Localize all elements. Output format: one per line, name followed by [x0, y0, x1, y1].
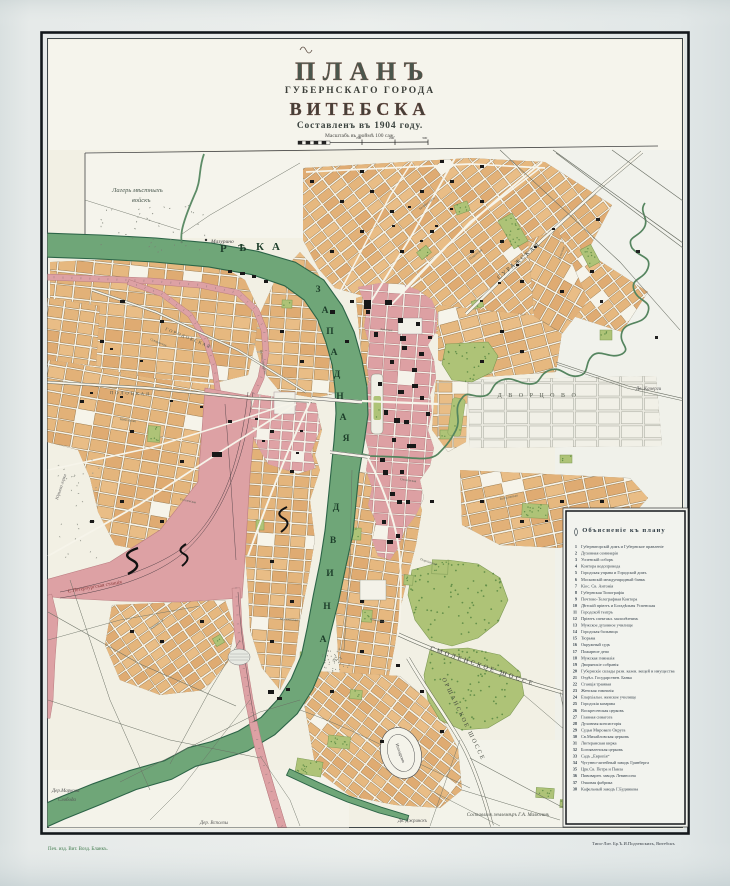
svg-text:Богоявленская церковь: Богоявленская церковь [581, 747, 623, 752]
svg-text:ГУБЕРНСКАГО ГОРОДА: ГУБЕРНСКАГО ГОРОДА [285, 86, 435, 96]
svg-text:Контора водопровода: Контора водопровода [581, 564, 620, 569]
svg-text:А: А [320, 635, 327, 645]
svg-text:1: 1 [575, 544, 577, 549]
svg-text:Д: Д [334, 370, 341, 380]
svg-text:Объясненіе къ плану: Объясненіе къ плану [582, 527, 666, 534]
svg-text:35: 35 [573, 767, 577, 772]
svg-text:Дв. Качерги: Дв. Качерги [635, 387, 662, 392]
svg-text:А: А [272, 241, 280, 253]
svg-text:32: 32 [573, 747, 577, 752]
svg-text:П: П [326, 327, 334, 337]
svg-text:Окружный судъ: Окружный судъ [581, 642, 611, 647]
svg-text:Дер.Маркова: Дер.Маркова [51, 789, 80, 794]
svg-text:31: 31 [573, 741, 577, 746]
svg-text:Станція трамвая: Станція трамвая [581, 682, 611, 687]
svg-text:Н: Н [336, 392, 344, 402]
svg-text:19: 19 [573, 662, 577, 667]
svg-text:Д: Д [333, 503, 340, 513]
svg-text:33: 33 [573, 754, 577, 759]
svg-text:З: З [315, 285, 320, 295]
svg-text:Главная синагога: Главная синагога [581, 714, 612, 719]
svg-text:23: 23 [573, 688, 577, 693]
svg-text:22: 22 [573, 682, 577, 687]
svg-text:А: А [322, 306, 329, 316]
svg-text:13: 13 [573, 623, 577, 628]
svg-text:15: 15 [573, 636, 577, 641]
svg-text:Чугунно-литейный заводъ Гринбе: Чугунно-литейный заводъ Гринберга [581, 760, 649, 765]
svg-text:12: 12 [573, 616, 577, 621]
svg-text:ВИТЕБСКА: ВИТЕБСКА [290, 99, 431, 119]
svg-text:Московскій международный банкъ: Московскій международный банкъ [581, 577, 646, 582]
svg-text:войскъ: войскъ [132, 197, 151, 204]
svg-text:Св.Михайловская церковь: Св.Михайловская церковь [581, 734, 629, 739]
svg-text:Женская гимназія: Женская гимназія [581, 688, 614, 693]
svg-text:К: К [256, 241, 264, 253]
svg-text:Воскресенская церковь: Воскресенская церковь [581, 708, 624, 713]
svg-text:38: 38 [573, 786, 577, 791]
svg-text:3: 3 [575, 557, 577, 562]
svg-text:Составленъ въ 1904 году.: Составленъ въ 1904 году. [297, 121, 423, 131]
svg-text:21: 21 [573, 675, 577, 680]
svg-text:Пивоварен. заводъ Левинсона: Пивоварен. заводъ Левинсона [581, 773, 636, 778]
svg-text:Кіос. Св. Антонія: Кіос. Св. Антонія [581, 583, 613, 588]
svg-text:Дер. Всползы: Дер. Всползы [199, 821, 229, 826]
svg-text:Губернскіе склады разн. казен.: Губернскіе склады разн. казен. вещей и и… [581, 669, 675, 674]
svg-text:Духовная консисторія: Духовная консисторія [581, 721, 621, 726]
svg-text:20: 20 [573, 669, 577, 674]
svg-text:Составлялъ землемѣръ Г.А. Малю: Составлялъ землемѣръ Г.А. Малюгинъ [467, 813, 550, 818]
svg-text:Отдѣл. Государствен. Банка: Отдѣл. Государствен. Банка [581, 675, 632, 680]
svg-text:Очковая фабрика: Очковая фабрика [581, 780, 613, 785]
svg-text:И: И [326, 569, 334, 579]
svg-text:Успенскій соборъ: Успенскій соборъ [581, 557, 614, 562]
svg-text:Лютеранская кирка: Лютеранская кирка [581, 741, 617, 746]
svg-text:Ѣ: Ѣ [238, 242, 247, 254]
svg-text:Городскія казармы: Городскія казармы [581, 701, 615, 706]
svg-text:Печ. изд. Вит. Возд. Бланкъ.: Печ. изд. Вит. Возд. Бланкъ. [48, 847, 108, 852]
svg-text:30: 30 [573, 734, 577, 739]
svg-text:25: 25 [573, 701, 577, 706]
svg-text:Тюрьма: Тюрьма [581, 636, 595, 641]
svg-text:Пріютъ спектакл. малолѣтнихъ: Пріютъ спектакл. малолѣтнихъ [581, 616, 639, 621]
svg-text:А: А [331, 348, 338, 358]
svg-text:Мужское духовное училище: Мужское духовное училище [581, 623, 633, 628]
svg-text:Кафельный заводъ Г.Будникова: Кафельный заводъ Г.Будникова [581, 786, 638, 791]
svg-text:200: 200 [389, 136, 395, 140]
svg-text:11: 11 [573, 610, 577, 615]
svg-text:Губернаторскій домъ и Губернск: Губернаторскій домъ и Губернское правлен… [581, 544, 664, 549]
svg-text:А: А [340, 413, 347, 423]
svg-text:Городская больница: Городская больница [581, 629, 618, 634]
svg-text:Лагерь мѣстныхъ: Лагерь мѣстныхъ [111, 187, 163, 194]
svg-text:Городской театръ: Городской театръ [581, 610, 614, 615]
svg-text:Городская управа и Городской д: Городская управа и Городской домъ [581, 570, 647, 575]
svg-text:Дѣтскій пріютъ и Богадѣльня Ус: Дѣтскій пріютъ и Богадѣльня Успенская [581, 603, 655, 608]
svg-text:Црк.Св. Петра и Павла: Црк.Св. Петра и Павла [581, 767, 623, 772]
svg-text:Епархіальн. женское училище: Епархіальн. женское училище [581, 695, 636, 700]
svg-text:9: 9 [575, 596, 577, 601]
svg-text:Дворянскіе собранія: Дворянскіе собранія [581, 662, 618, 667]
svg-text:Духовная семинарія: Духовная семинарія [581, 551, 618, 556]
svg-text:Мужская гимназія: Мужская гимназія [581, 655, 614, 660]
svg-text:Дв. Джринскъ: Дв. Джринскъ [397, 819, 428, 824]
svg-text:18: 18 [573, 655, 577, 660]
svg-text:Судьи Мироваго Округа: Судьи Мироваго Округа [581, 727, 626, 732]
svg-text:Н: Н [323, 602, 331, 612]
svg-text:Губернская Типографія: Губернская Типографія [581, 590, 624, 595]
svg-text:Пожарное депо: Пожарное депо [581, 649, 609, 654]
svg-text:Слобода: Слобода [58, 798, 76, 803]
svg-text:ДВОРЦОВО: ДВОРЦОВО [498, 393, 583, 399]
svg-text:Я: Я [343, 434, 350, 444]
svg-text:2: 2 [575, 551, 577, 556]
svg-text:29: 29 [573, 727, 577, 732]
svg-text:28: 28 [573, 721, 577, 726]
svg-text:Мазурино: Мазурино [210, 239, 234, 245]
svg-text:100: 100 [356, 136, 362, 140]
svg-text:8: 8 [575, 590, 577, 595]
svg-text:300: 300 [422, 136, 428, 140]
svg-text:В: В [330, 536, 337, 546]
svg-text:10: 10 [573, 603, 577, 608]
svg-text:ПЛАНЪ: ПЛАНЪ [295, 57, 431, 86]
svg-text:Почтово-Телеграфная Контора: Почтово-Телеграфная Контора [581, 596, 637, 601]
svg-text:5: 5 [575, 570, 577, 575]
